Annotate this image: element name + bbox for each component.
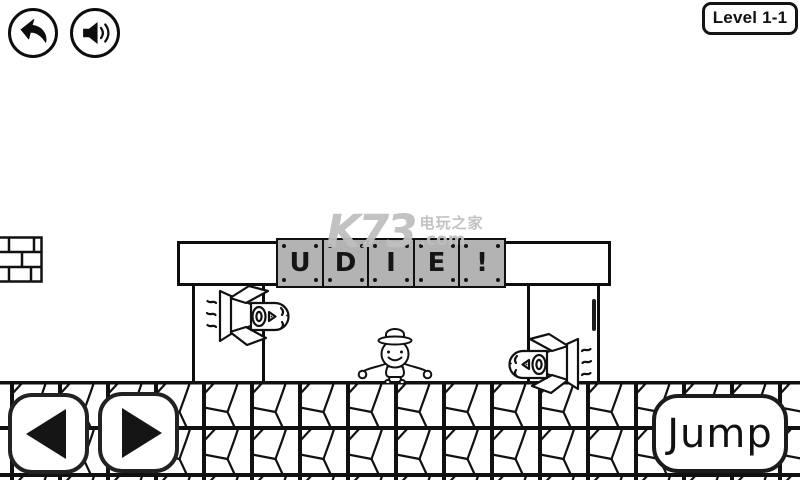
rivet-dot xyxy=(464,244,468,248)
rivet-dot xyxy=(451,278,455,282)
sign-block-i: I xyxy=(367,238,415,288)
sign-blocks: U D I E ! xyxy=(276,238,506,288)
move-left-button[interactable] xyxy=(8,393,89,474)
rivet-dot xyxy=(405,244,409,248)
triangle-right-icon xyxy=(122,408,162,458)
rivet-dot xyxy=(496,244,500,248)
level-badge: Level 1-1 xyxy=(702,2,798,35)
blower-speaker-left xyxy=(201,282,301,348)
game-screen: Level 1-1 U D I E xyxy=(0,0,800,480)
jump-button[interactable]: Jump xyxy=(652,394,788,473)
rivet-dot xyxy=(360,244,364,248)
rivet-dot xyxy=(464,278,468,282)
rivet-dot xyxy=(328,244,332,248)
triangle-left-icon xyxy=(26,409,66,459)
blower-speaker-right xyxy=(497,330,597,396)
rivet-dot xyxy=(373,244,377,248)
back-button[interactable] xyxy=(8,8,58,58)
pillar-mark xyxy=(592,299,596,331)
sign-letter: ! xyxy=(476,248,488,278)
rivet-dot xyxy=(314,244,318,248)
sound-button[interactable] xyxy=(70,8,120,58)
rivet-dot xyxy=(314,278,318,282)
sign-block-u: U xyxy=(276,238,324,288)
watermark-site-name: 电玩之家 xyxy=(420,216,484,232)
sign-block-d: D xyxy=(322,238,370,288)
sign-block-exclaim: ! xyxy=(458,238,506,288)
brick-block xyxy=(0,236,43,283)
player-character xyxy=(357,328,433,384)
sign-letter: U xyxy=(289,248,310,278)
rivet-dot xyxy=(496,278,500,282)
rivet-dot xyxy=(419,244,423,248)
sign-block-e: E xyxy=(413,238,461,288)
rivet-dot xyxy=(360,278,364,282)
sign-letter: D xyxy=(335,248,357,278)
rivet-dot xyxy=(373,278,377,282)
speaker-icon xyxy=(78,16,112,50)
sign-letter: E xyxy=(428,248,446,278)
rivet-dot xyxy=(405,278,409,282)
sign-letter: I xyxy=(386,248,396,278)
rivet-dot xyxy=(282,244,286,248)
rivet-dot xyxy=(451,244,455,248)
back-arrow-icon xyxy=(16,16,50,50)
rivet-dot xyxy=(328,278,332,282)
rivet-dot xyxy=(419,278,423,282)
move-right-button[interactable] xyxy=(98,392,179,473)
